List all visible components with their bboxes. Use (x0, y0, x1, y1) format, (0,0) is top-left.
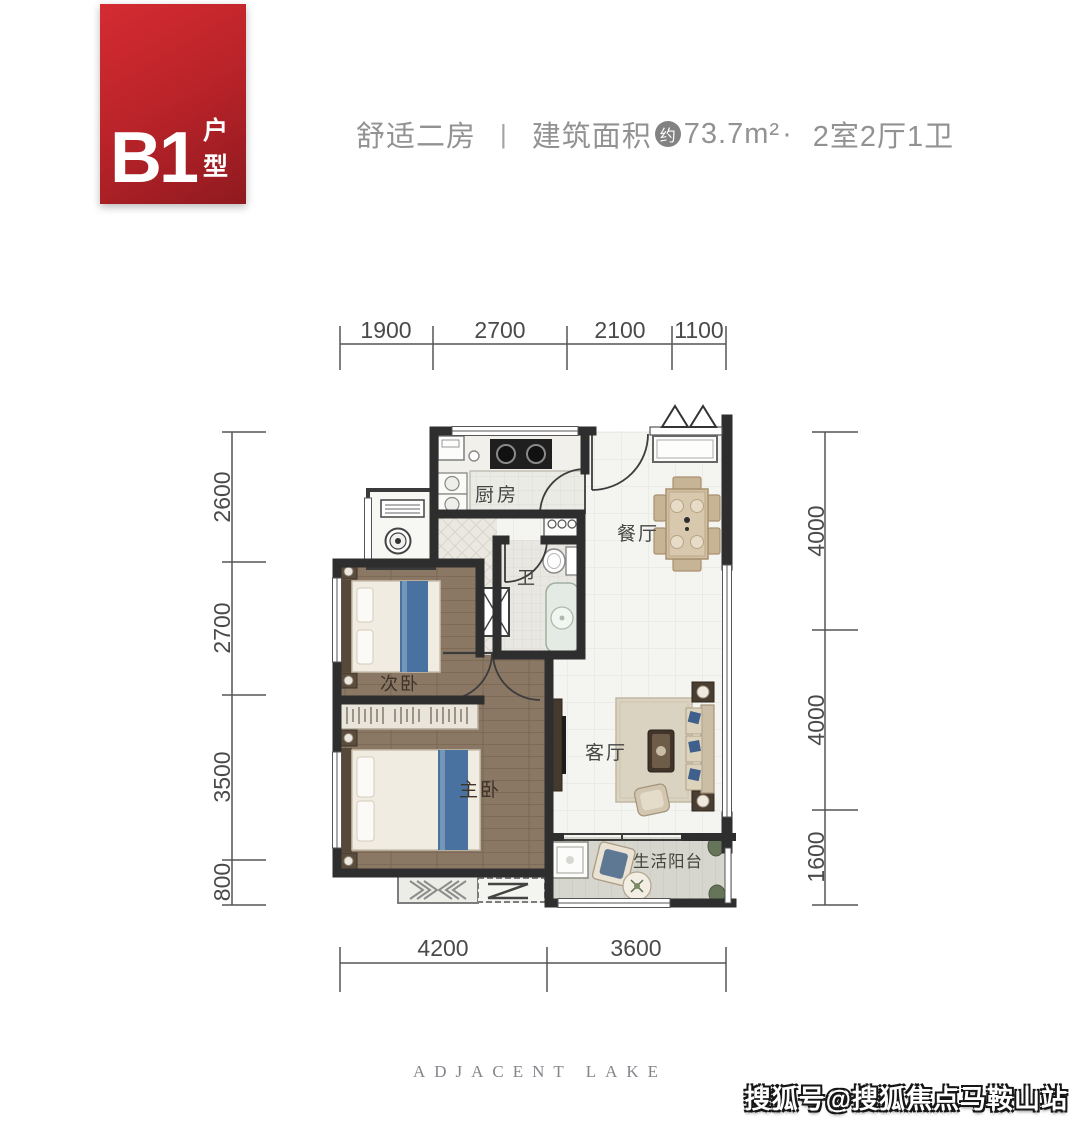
pillow-icon (688, 768, 701, 781)
pillow-icon (357, 801, 374, 841)
dining-chair (708, 495, 720, 521)
unit-code: B1 (110, 129, 196, 188)
title-room-desc: 舒适二房 (356, 113, 476, 155)
title-area-label: 建筑面积 (532, 113, 652, 155)
unit-type-label: 户型 (203, 111, 246, 183)
room-label-balcony: 生活阳台 (633, 852, 703, 871)
table-deco (656, 746, 666, 756)
dim-label: 2700 (474, 317, 525, 343)
title-area-value: 73.7m² (684, 118, 780, 151)
dim-label: 3600 (610, 935, 661, 961)
dim-label: 2100 (594, 317, 645, 343)
drain-dot (560, 616, 565, 621)
room-label-master-bedroom: 主卧 (459, 779, 501, 801)
dim-label: 2700 (209, 602, 235, 653)
bay-plant-icon (690, 406, 716, 427)
bottom-bay (398, 876, 545, 903)
bay-plant-icon (662, 406, 688, 427)
room-label-bath: 卫 (517, 568, 535, 588)
dining-chair (708, 528, 720, 554)
dim-label: 4200 (417, 935, 468, 961)
plate-icon (691, 536, 704, 549)
pillow-icon (688, 740, 701, 753)
burner-icon (527, 445, 545, 463)
tv-icon (562, 716, 566, 774)
room-label-kitchen: 厨房 (475, 484, 519, 506)
pillow-icon (357, 588, 373, 622)
room-label-second-bedroom: 次卧 (380, 674, 420, 694)
dim-label: 1600 (803, 831, 829, 882)
room-label-dining: 餐厅 (617, 523, 659, 545)
dim-label: 2600 (209, 471, 235, 522)
plate-icon (671, 536, 684, 549)
plan-title: 舒适二房 | 建筑面积 约 73.7m² · 2室2厅1卫 (356, 116, 954, 152)
title-layout: 2室2厅1卫 (813, 113, 954, 155)
window (650, 427, 722, 435)
plate-icon (691, 500, 704, 513)
vase-icon (685, 527, 689, 531)
dim-label: 3500 (209, 751, 235, 802)
wardrobe (340, 702, 478, 729)
bed-runner-stripe (440, 750, 445, 850)
floorplan-svg: 厨房 卫 餐厅 客厅 次卧 主卧 生活阳台 1900 2700 2100 110… (180, 280, 880, 1010)
dim-ticks-bottom (340, 947, 726, 992)
pillow-icon (357, 757, 374, 797)
hanger-icons (347, 707, 467, 724)
vase-icon (684, 517, 690, 523)
pillow-icon (357, 630, 373, 664)
unit-badge: B1 户型 (100, 4, 246, 204)
lamp-icon (344, 857, 353, 866)
title-dot: · (782, 118, 793, 151)
toilet-icon (543, 549, 565, 573)
bed-runner-stripe (402, 581, 407, 672)
dim-label: 1100 (674, 317, 723, 343)
second-bedroom-furniture (340, 564, 440, 688)
dim-label: 4000 (803, 505, 829, 556)
balcony-rail (725, 848, 731, 903)
burner-icon (497, 445, 515, 463)
floorplan-page: B1 户型 舒适二房 | 建筑面积 约 73.7m² · 2室2厅1卫 (0, 0, 1080, 1121)
dining-chair (673, 559, 701, 571)
toilet-tank (566, 547, 578, 575)
plate-icon (671, 500, 684, 513)
sink-basin (445, 498, 459, 512)
dining-chair (673, 477, 701, 489)
title-divider: | (500, 119, 508, 150)
basin-drain (566, 856, 574, 864)
faucet-icon (469, 451, 479, 461)
watermark-text: 搜狐号@搜狐焦点马鞍山站 (745, 1079, 1068, 1116)
dim-label: 1900 (360, 317, 411, 343)
dim-label: 4000 (803, 694, 829, 745)
dining-chair (654, 495, 666, 521)
lamp-icon (344, 567, 353, 576)
side-table-top (697, 686, 709, 698)
room-label-living: 客厅 (585, 742, 627, 764)
lamp-icon (344, 734, 353, 743)
armchair (633, 783, 670, 817)
window (365, 498, 372, 560)
sink-basin (445, 477, 459, 491)
sofa (701, 705, 714, 793)
lamp-icon (344, 676, 353, 685)
side-table-top (697, 795, 709, 807)
dim-label: 800 (209, 863, 235, 901)
approx-circle-icon: 约 (655, 121, 681, 147)
washer-dot (395, 538, 401, 544)
plant-icon (634, 883, 640, 889)
